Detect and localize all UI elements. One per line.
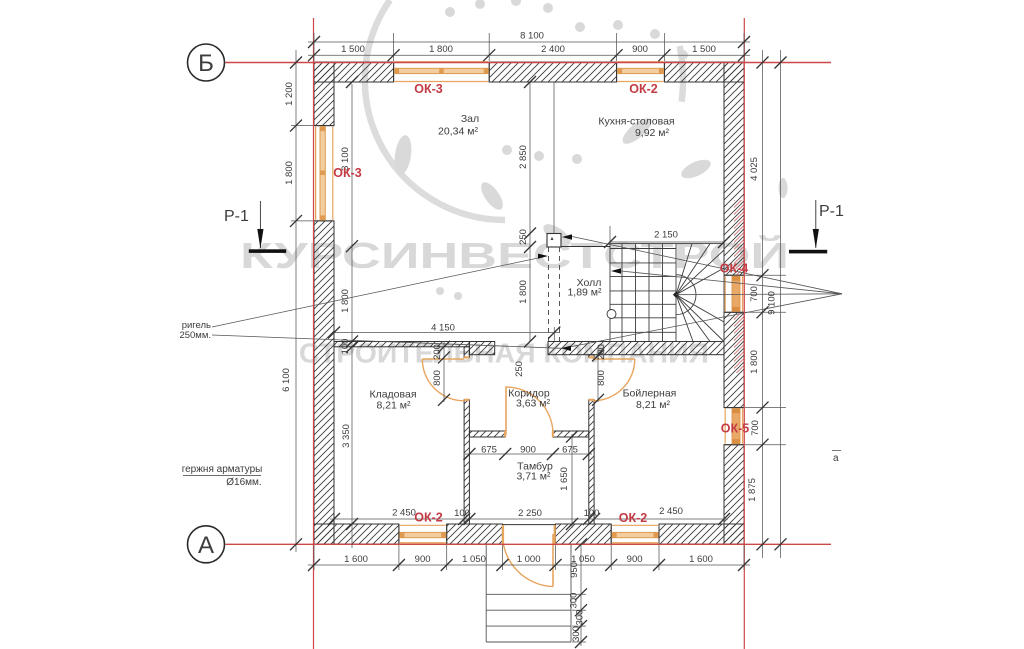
svg-text:700: 700 <box>750 420 761 436</box>
svg-text:675: 675 <box>562 445 578 456</box>
svg-text:800: 800 <box>596 370 607 386</box>
svg-text:1 000: 1 000 <box>517 554 541 565</box>
svg-text:9,92 м²: 9,92 м² <box>635 127 670 139</box>
svg-text:1 500: 1 500 <box>692 44 716 55</box>
svg-text:1 800: 1 800 <box>749 350 760 374</box>
svg-text:Ø16мм.: Ø16мм. <box>226 477 261 488</box>
svg-text:300: 300 <box>569 593 580 609</box>
svg-text:8 100: 8 100 <box>520 31 544 42</box>
svg-text:2 150: 2 150 <box>654 230 678 241</box>
svg-text:700: 700 <box>749 286 760 302</box>
svg-text:Р-1: Р-1 <box>224 208 249 225</box>
svg-text:200: 200 <box>596 344 607 360</box>
svg-text:100: 100 <box>454 508 470 519</box>
svg-text:ОК-2: ОК-2 <box>619 511 648 525</box>
svg-text:6 100: 6 100 <box>281 368 292 392</box>
svg-text:200: 200 <box>432 344 443 360</box>
svg-text:900: 900 <box>520 445 536 456</box>
svg-text:ОК-5: ОК-5 <box>721 422 750 436</box>
svg-text:1 800: 1 800 <box>340 289 351 313</box>
svg-text:ОК-3: ОК-3 <box>333 166 362 180</box>
svg-text:2 450: 2 450 <box>392 508 416 519</box>
svg-text:100: 100 <box>584 508 600 519</box>
svg-text:950: 950 <box>569 562 580 578</box>
svg-text:1 500: 1 500 <box>341 44 365 55</box>
svg-text:А: А <box>198 532 214 559</box>
svg-text:ОК-3: ОК-3 <box>414 82 443 96</box>
svg-text:1 650: 1 650 <box>559 467 570 491</box>
svg-text:а: а <box>833 453 839 464</box>
svg-text:ОК-4: ОК-4 <box>720 262 749 276</box>
svg-text:250мм.: 250мм. <box>179 330 211 341</box>
svg-text:300: 300 <box>575 610 586 626</box>
svg-text:1 800: 1 800 <box>429 44 453 55</box>
svg-text:4 150: 4 150 <box>431 323 455 334</box>
svg-text:Б: Б <box>198 50 214 77</box>
svg-text:1 600: 1 600 <box>344 554 368 565</box>
svg-text:3,71 м²: 3,71 м² <box>516 471 551 483</box>
svg-text:Бойлерная: Бойлерная <box>623 388 677 400</box>
svg-text:675: 675 <box>481 445 497 456</box>
svg-text:900: 900 <box>632 44 648 55</box>
svg-text:1 800: 1 800 <box>284 161 295 185</box>
svg-text:2 250: 2 250 <box>518 508 542 519</box>
svg-text:8,21 м²: 8,21 м² <box>636 399 671 411</box>
svg-text:ОК-2: ОК-2 <box>414 511 443 525</box>
svg-text:250: 250 <box>514 361 525 377</box>
svg-text:2 400: 2 400 <box>541 44 565 55</box>
svg-text:Кухня-столовая: Кухня-столовая <box>598 116 674 128</box>
svg-text:1 050: 1 050 <box>462 554 486 565</box>
svg-text:8,21 м²: 8,21 м² <box>376 400 411 412</box>
svg-text:20,34 м²: 20,34 м² <box>438 126 478 138</box>
svg-text:1 875: 1 875 <box>747 478 758 502</box>
svg-text:900: 900 <box>627 554 643 565</box>
svg-text:300: 300 <box>571 626 582 642</box>
svg-text:гержня арматуры: гержня арматуры <box>182 464 263 475</box>
svg-text:1 800: 1 800 <box>518 280 529 304</box>
svg-text:800: 800 <box>432 370 443 386</box>
svg-text:3,63 м²: 3,63 м² <box>516 398 551 410</box>
svg-text:4 025: 4 025 <box>749 157 760 181</box>
svg-text:1 200: 1 200 <box>284 82 295 106</box>
svg-text:3 350: 3 350 <box>341 424 352 448</box>
svg-text:2 850: 2 850 <box>518 145 529 169</box>
svg-text:2 450: 2 450 <box>659 506 683 517</box>
svg-text:250: 250 <box>518 229 529 245</box>
svg-text:1,89 м²: 1,89 м² <box>567 287 602 299</box>
svg-text:9 100: 9 100 <box>767 291 778 315</box>
svg-text:100: 100 <box>340 339 351 355</box>
svg-text:ОК-2: ОК-2 <box>629 82 658 96</box>
svg-text:1 600: 1 600 <box>689 554 713 565</box>
svg-text:Р-1: Р-1 <box>819 203 844 220</box>
svg-text:Зал: Зал <box>461 113 479 125</box>
svg-text:900: 900 <box>415 554 431 565</box>
